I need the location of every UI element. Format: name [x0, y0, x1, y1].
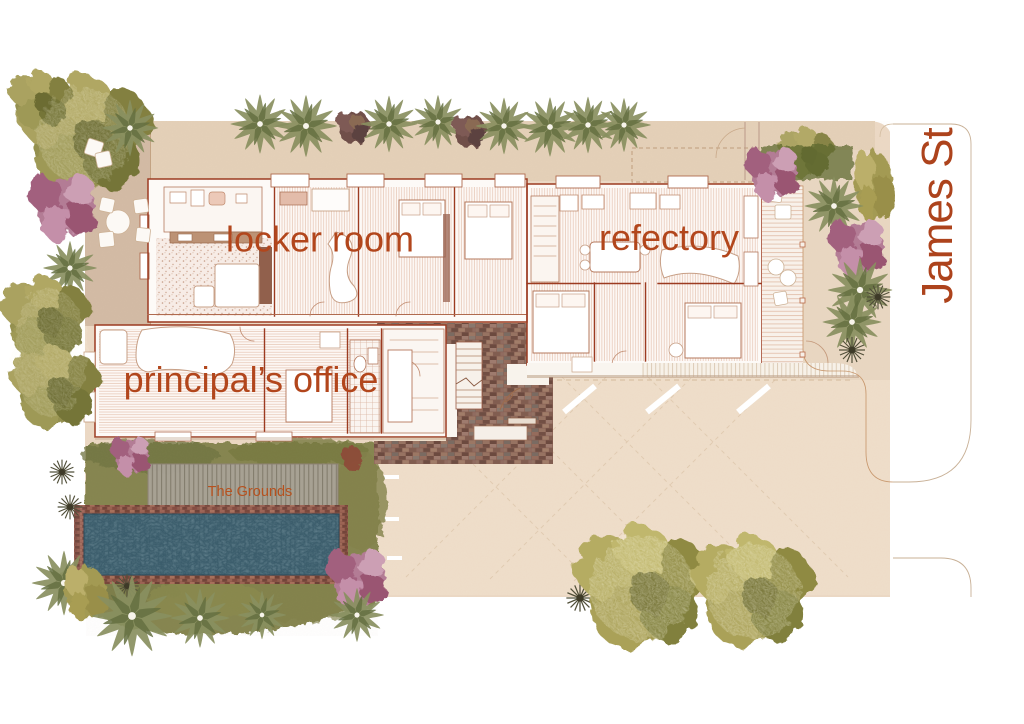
svg-text:principal’s office: principal’s office [124, 359, 379, 400]
svg-text:The Grounds: The Grounds [208, 484, 293, 500]
svg-text:James St: James St [913, 128, 962, 304]
svg-text:locker room: locker room [226, 219, 414, 260]
svg-text:refectory: refectory [599, 217, 739, 258]
